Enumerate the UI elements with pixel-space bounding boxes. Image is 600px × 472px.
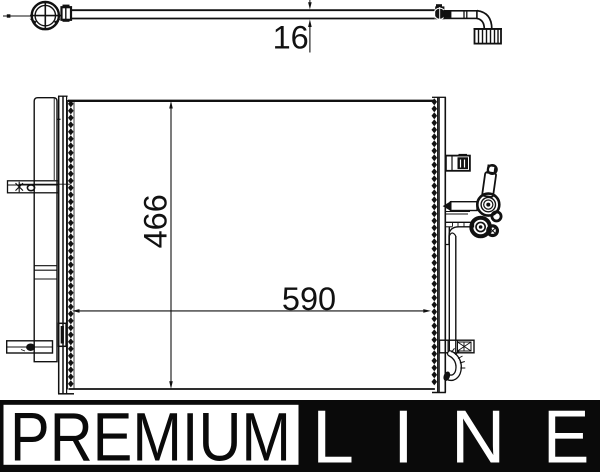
svg-text:N: N: [451, 394, 506, 472]
svg-text:L: L: [312, 394, 354, 472]
svg-text:E: E: [543, 395, 589, 472]
svg-text:590: 590: [282, 281, 336, 317]
svg-text:I: I: [393, 394, 414, 472]
svg-text:16: 16: [273, 20, 309, 56]
svg-text:PREMIUM: PREMIUM: [10, 399, 291, 472]
svg-text:466: 466: [138, 194, 174, 248]
